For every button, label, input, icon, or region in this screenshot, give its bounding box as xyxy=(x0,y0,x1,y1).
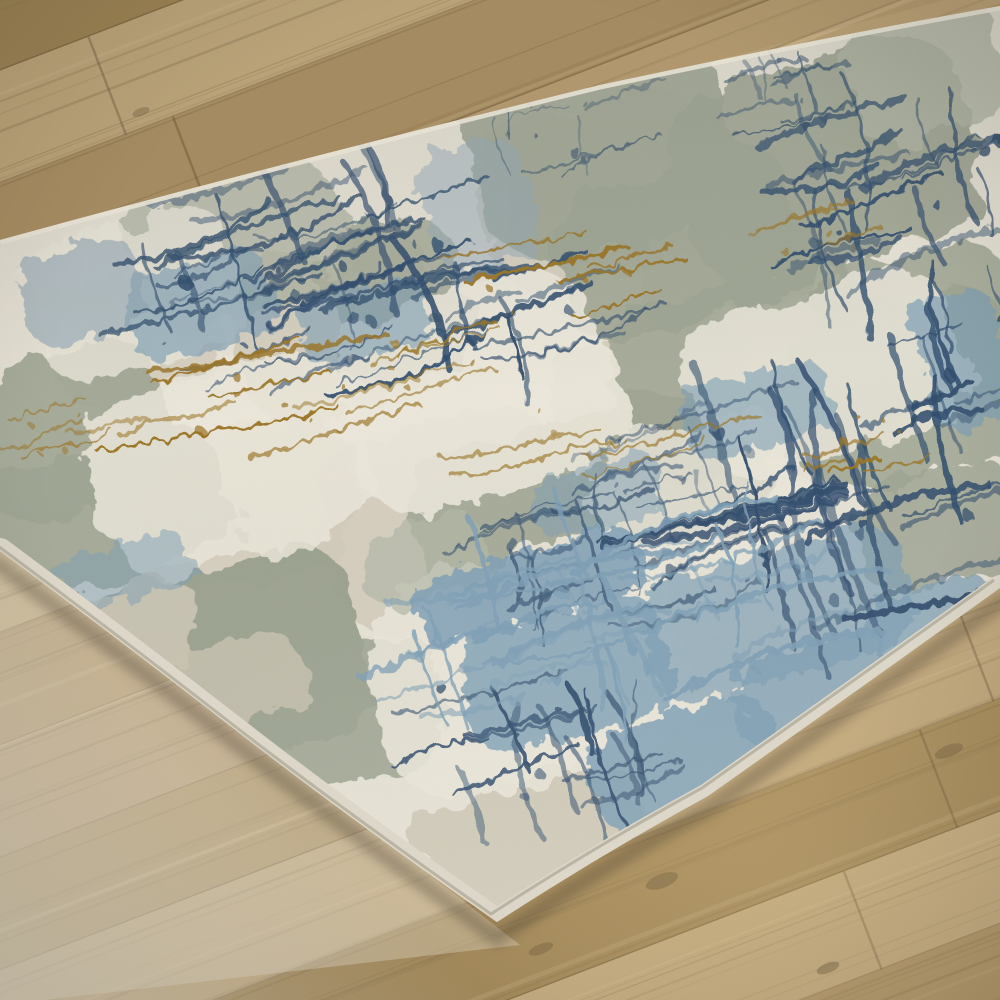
rug-product-photo xyxy=(0,0,1000,1000)
vignette-overlay xyxy=(0,0,1000,1000)
scene-svg xyxy=(0,0,1000,1000)
